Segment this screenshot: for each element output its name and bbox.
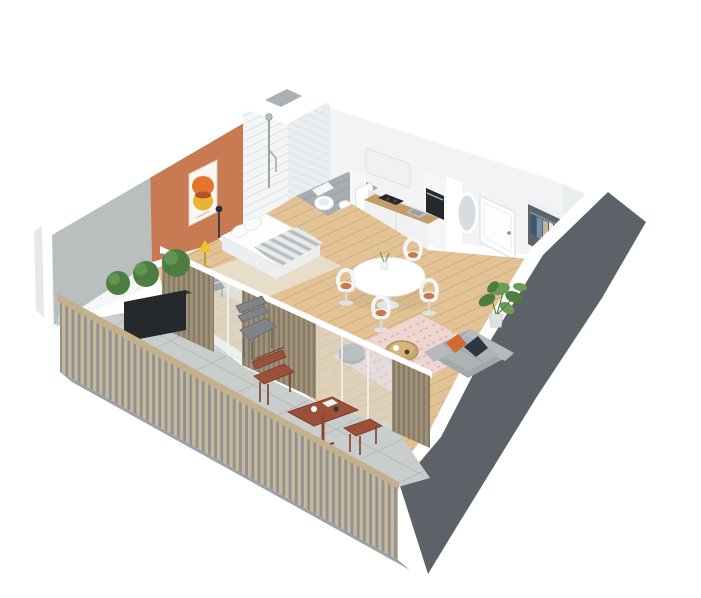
table-bowl — [405, 350, 410, 355]
door-handle — [507, 231, 511, 235]
clothes-denim — [537, 217, 542, 240]
west-outer-sliver — [34, 226, 44, 318]
burner — [394, 200, 397, 203]
oval-mirror — [457, 194, 477, 232]
floorplan-svg — [0, 0, 701, 598]
cup — [311, 406, 317, 412]
table-tray-item — [393, 345, 399, 351]
burner — [387, 198, 390, 201]
art-overlap — [195, 192, 211, 199]
dark-item — [333, 406, 338, 411]
clothes-navy — [531, 214, 536, 236]
plant-pot — [489, 314, 503, 327]
floorplan-render — [0, 0, 701, 598]
